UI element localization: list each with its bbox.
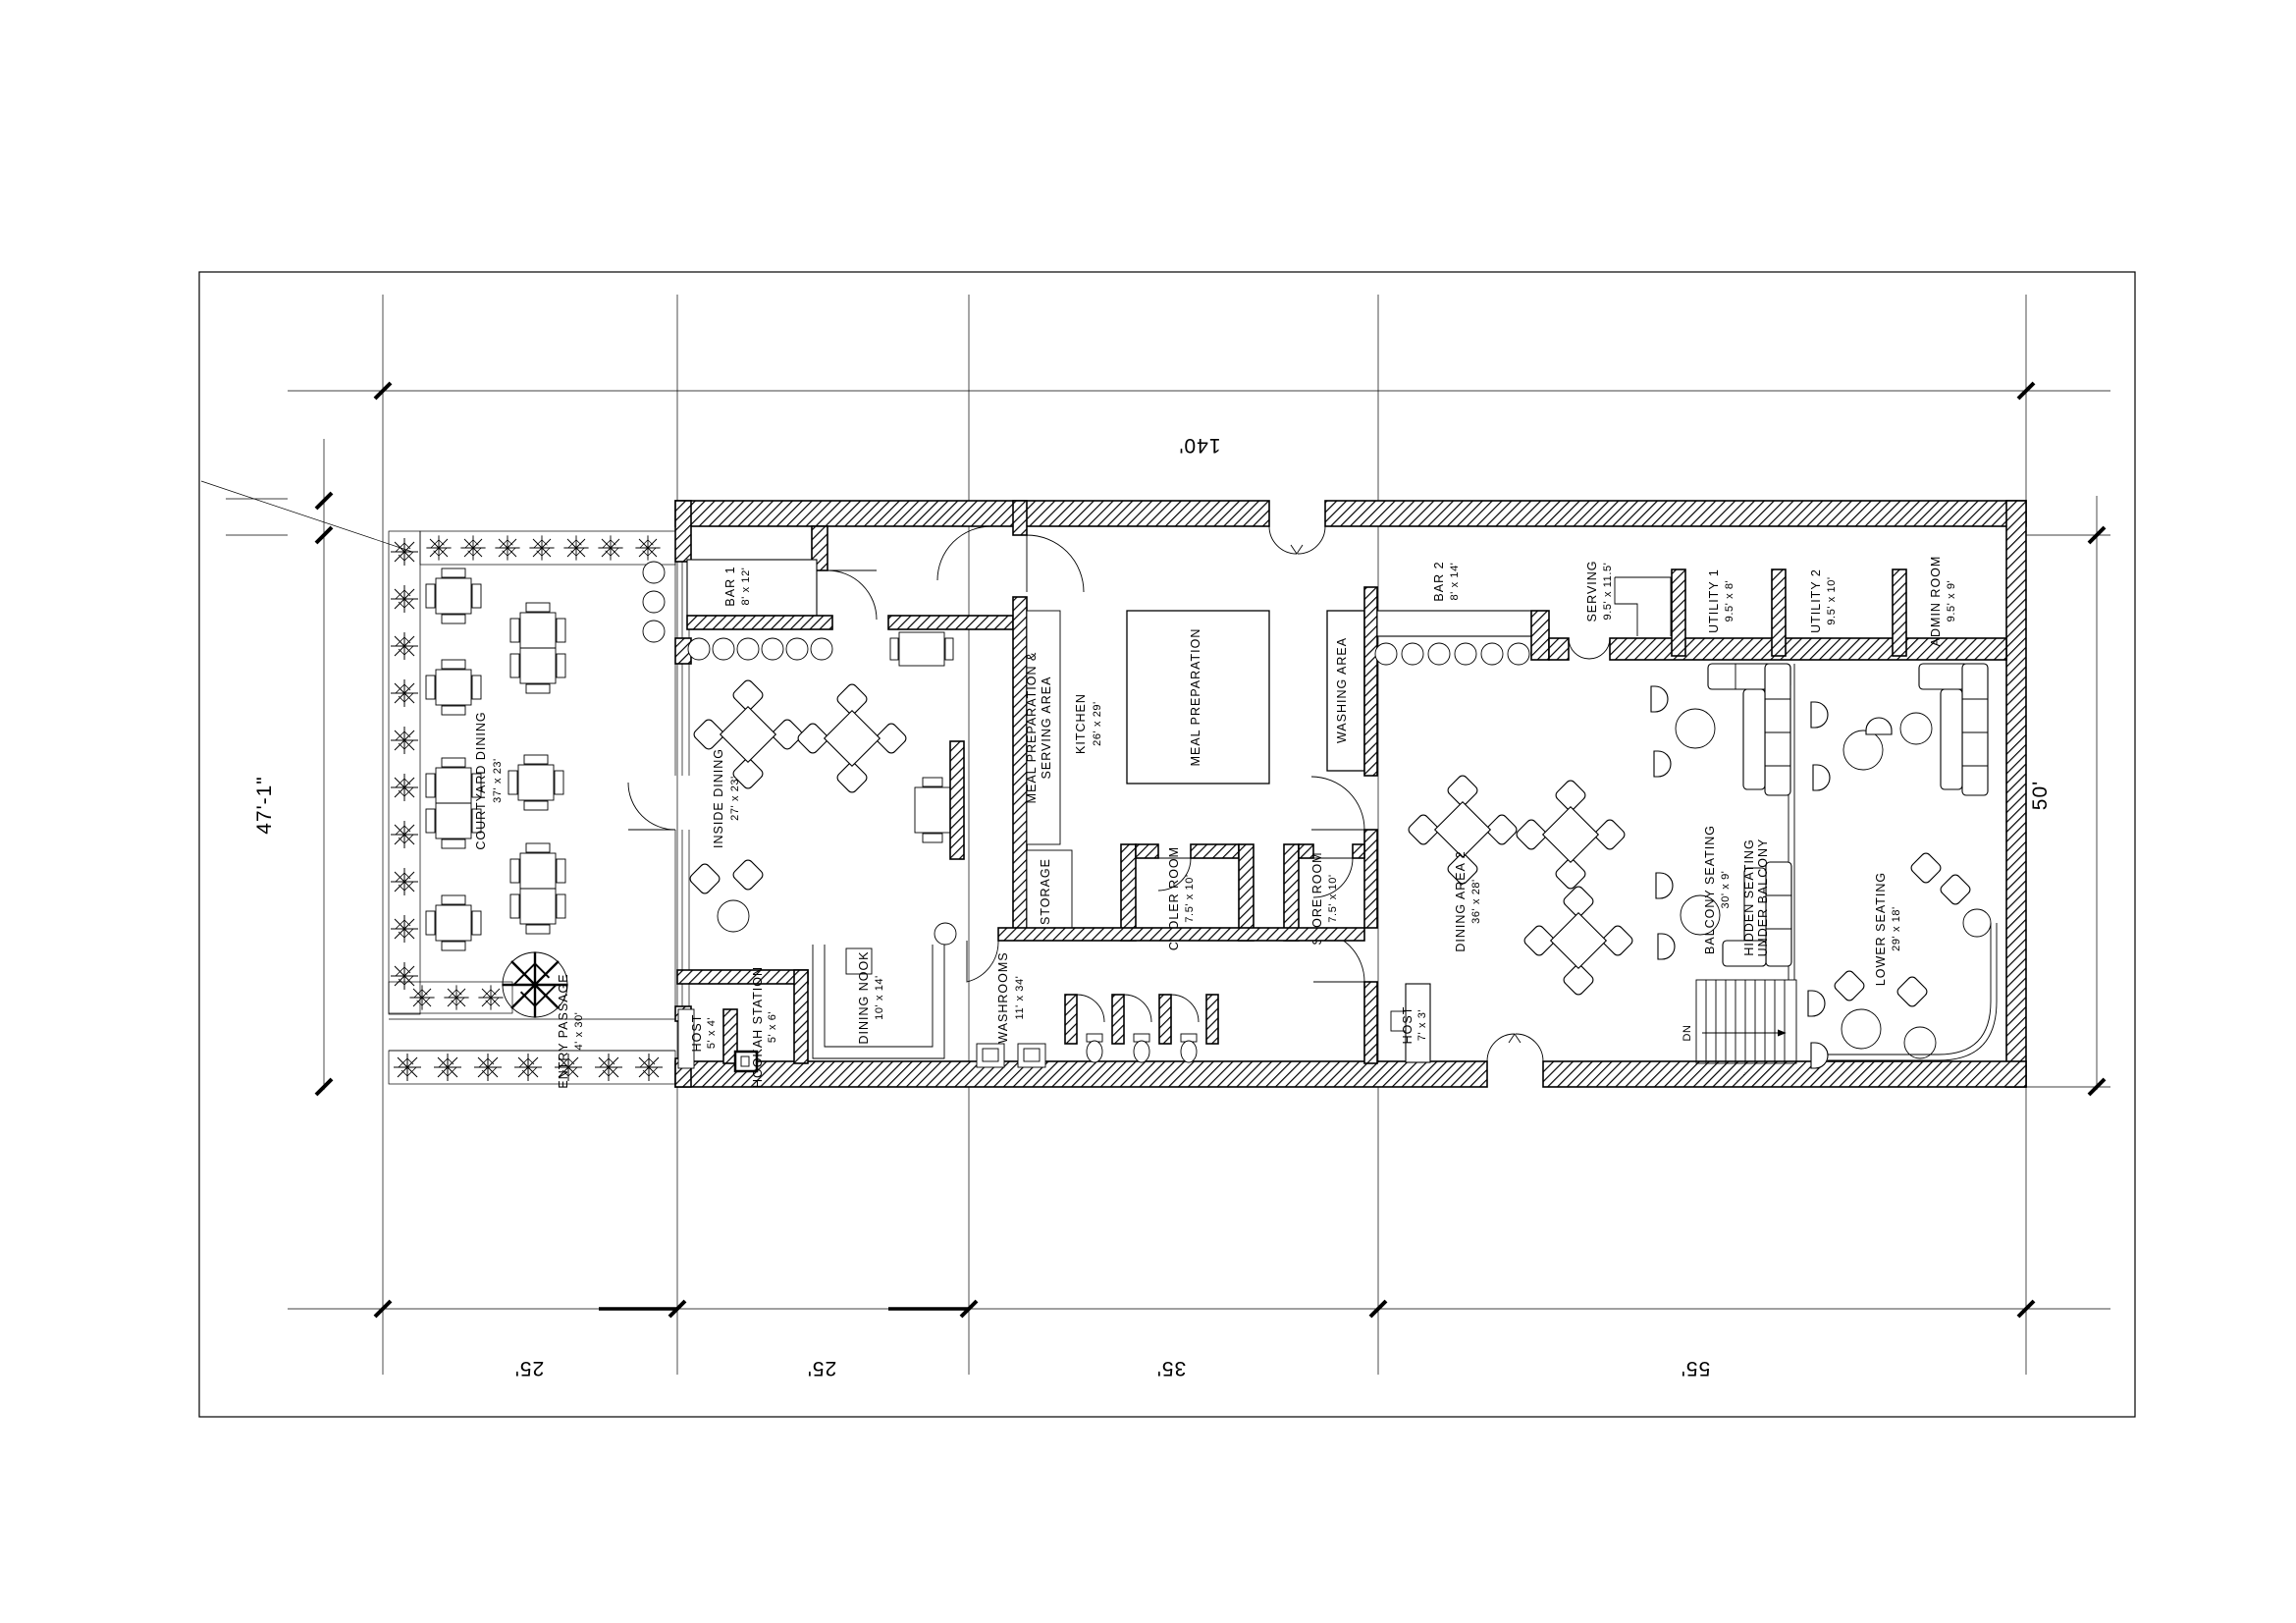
label-hidden-seating-1: HIDDEN SEATING [1742, 839, 1756, 955]
size-dining-nook: 10' x 14' [874, 975, 885, 1020]
label-kitchen: KITCHEN [1074, 693, 1088, 754]
dim-left-height: 47'-1" [253, 776, 276, 835]
label-utility1: UTILITY 1 [1707, 568, 1721, 633]
dim-bottom-4: 55' [1681, 1357, 1710, 1380]
label-courtyard-dining: COURTYARD DINING [474, 711, 488, 849]
dim-bottom-2: 25' [807, 1357, 836, 1380]
size-entry-passage: 4' x 30' [573, 1012, 585, 1051]
label-bar2: BAR 2 [1432, 561, 1446, 601]
size-inside-dining: 27' x 23' [729, 776, 741, 821]
label-washrooms: WASHROOMS [996, 951, 1010, 1043]
label-lower-seating: LOWER SEATING [1874, 872, 1888, 986]
lower-seating [1808, 664, 1997, 1068]
size-serving: 9.5' x 11.5' [1602, 563, 1614, 621]
label-stairs-dn: DN [1682, 1024, 1693, 1041]
label-hidden-seating-2: UNDER BALCONY [1756, 839, 1770, 957]
label-bar1: BAR 1 [723, 566, 737, 606]
size-washrooms: 11' x 34' [1014, 976, 1026, 1020]
label-hookah-station: HOOKAH STATION [751, 966, 765, 1088]
entry-passage [389, 1019, 675, 1051]
dim-top-width: 140' [1178, 434, 1220, 457]
washrooms [967, 928, 1364, 1067]
size-admin-room: 9.5' x 9' [1946, 580, 1957, 622]
page-border [199, 272, 2135, 1417]
size-bar1: 8' x 12' [740, 568, 752, 606]
label-entry-passage: ENTRY PASSAGE [557, 973, 570, 1088]
size-host-left: 5' x 4' [706, 1017, 718, 1049]
size-kitchen: 26' x 29' [1092, 701, 1103, 746]
floor-plan-svg: 140' 47'-1" 50' 25' 25' 35' 55' COURTYAR… [0, 0, 2296, 1623]
dim-bottom-3: 35' [1156, 1357, 1186, 1380]
label-serving: SERVING [1585, 560, 1599, 622]
size-hookah-station: 5' x 6' [767, 1011, 778, 1043]
dim-bottom-1: 25' [514, 1357, 544, 1380]
floor-plan-sheet: 140' 47'-1" 50' 25' 25' 35' 55' COURTYAR… [0, 0, 2296, 1623]
size-cooler-room: 7.5' x 10' [1184, 874, 1196, 922]
bar2-serving-utilities [1375, 569, 2006, 665]
label-meal-prep-serving-2: SERVING AREA [1040, 676, 1053, 780]
size-dining-area2: 36' x 28' [1470, 879, 1482, 924]
size-utility1: 9.5' x 8' [1724, 580, 1735, 622]
size-balcony-seating: 30' x 9' [1720, 871, 1732, 909]
label-dining-nook: DINING NOOK [857, 950, 871, 1044]
label-meal-preparation: MEAL PREPARATION [1189, 628, 1202, 767]
size-store-room: 7.5' x 10' [1327, 874, 1339, 922]
size-lower-seating: 29' x 18' [1891, 906, 1902, 951]
size-bar2: 8' x 14' [1449, 563, 1461, 601]
label-host-main: HOST [1401, 1006, 1415, 1045]
label-washing-area: WASHING AREA [1335, 637, 1349, 743]
size-utility2: 9.5' x 10' [1826, 576, 1838, 624]
label-storage: STORAGE [1039, 858, 1052, 925]
label-utility2: UTILITY 2 [1809, 568, 1823, 633]
label-dining-area2: DINING AREA 2 [1454, 850, 1468, 951]
size-courtyard-dining: 37' x 23' [492, 758, 504, 803]
dim-right-height: 50' [2029, 781, 2052, 810]
label-meal-prep-serving-1: MEAL PREPARATION & [1025, 652, 1039, 804]
label-inside-dining: INSIDE DINING [712, 748, 725, 848]
label-balcony-seating: BALCONY SEATING [1703, 825, 1717, 954]
label-host-left: HOST [690, 1014, 704, 1053]
bar1 [643, 526, 1013, 660]
size-host-main: 7' x 3' [1416, 1009, 1428, 1041]
label-admin-room: ADMIN ROOM [1929, 556, 1943, 647]
balcony-seating [1651, 664, 1796, 1063]
